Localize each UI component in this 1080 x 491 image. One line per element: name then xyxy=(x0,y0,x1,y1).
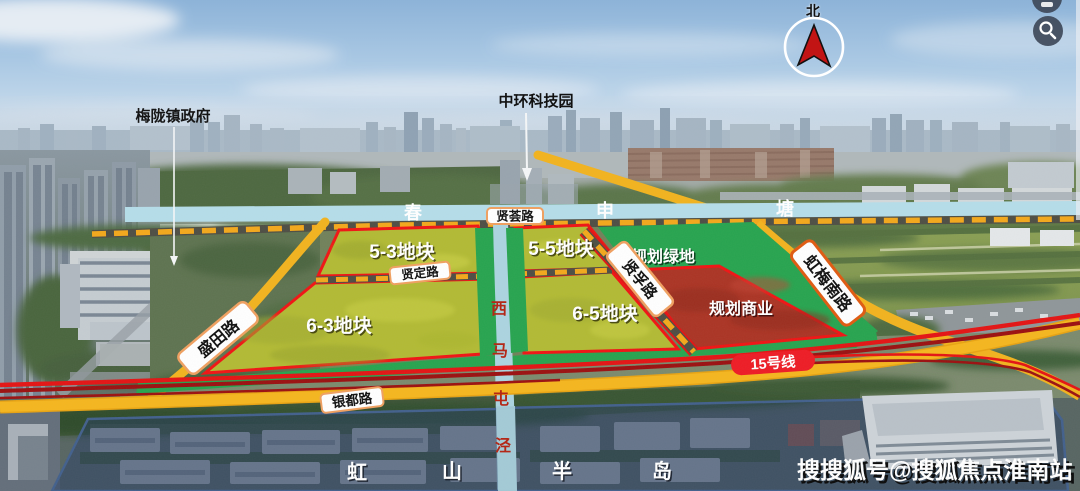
svg-text:中环科技园: 中环科技园 xyxy=(498,92,573,110)
svg-text:北: 北 xyxy=(806,3,820,19)
